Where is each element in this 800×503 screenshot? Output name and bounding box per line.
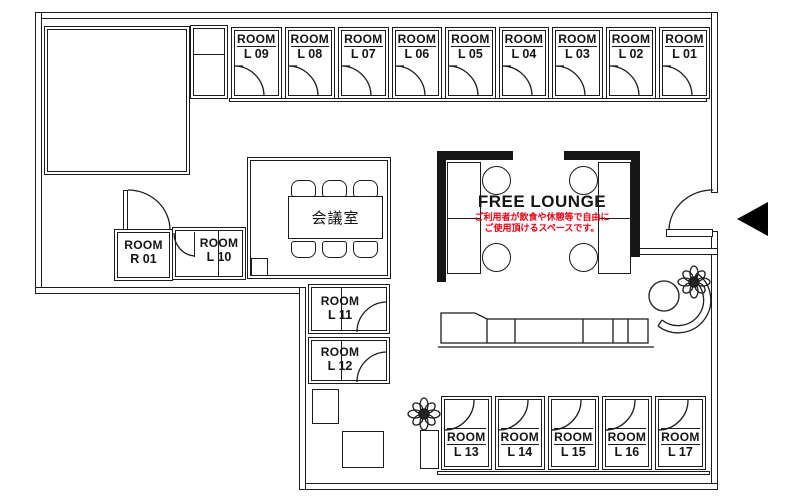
room-word: ROOM <box>501 428 540 445</box>
closet-below-l12 <box>312 389 339 424</box>
room-word: ROOM <box>447 428 486 445</box>
room-label: L 14 <box>496 445 545 460</box>
storage-room-small <box>190 25 228 99</box>
room-word: ROOM <box>608 428 647 445</box>
room-door-arc <box>551 399 581 430</box>
room-l15: ROOM L 15 <box>548 396 599 470</box>
room-word: ROOM <box>505 32 544 47</box>
storage-room-large <box>44 26 190 175</box>
wall-bottom <box>299 483 718 490</box>
wall-top <box>35 12 718 19</box>
room-label: L 11 <box>309 308 371 323</box>
room-l12: ROOM L 12 <box>308 337 390 384</box>
lounge-description-line1: ご利用者が飲食や休憩等で自由に <box>452 212 632 224</box>
room-l10: ROOM L 10 <box>172 227 246 280</box>
lounge-description-line2: ご使用頂けるスペースです。 <box>452 223 632 235</box>
room-l11: ROOM L 11 <box>308 284 390 334</box>
room-word: ROOM <box>554 428 593 445</box>
room-label: L 06 <box>393 47 442 62</box>
room-l03: ROOM L 03 <box>552 27 603 99</box>
wall-entrance-lower <box>637 248 718 255</box>
rooms-bottom-baseline <box>437 471 710 475</box>
room-r01: ROOM R 01 <box>114 229 173 281</box>
rooms-bottom-row: ROOM L 13 ROOM L 14 ROOM L 15 ROOM L 16 <box>441 396 704 470</box>
rooms-top-row: ROOM L 09 ROOM L 08 ROOM L 07 ROOM L 06 <box>231 27 705 99</box>
room-word: ROOM <box>612 32 651 47</box>
room-label: R 01 <box>115 252 172 267</box>
lounge-title: FREE LOUNGE <box>452 192 632 212</box>
room-label: L 10 <box>193 250 245 265</box>
room-l07: ROOM L 07 <box>338 27 389 99</box>
rooms-top-baseline <box>229 98 707 102</box>
room-door-arc <box>555 65 585 96</box>
room-word: ROOM <box>344 32 383 47</box>
room-l16: ROOM L 16 <box>602 396 653 470</box>
room-door-arc <box>341 65 371 96</box>
room-word: ROOM <box>237 32 276 47</box>
room-l08: ROOM L 08 <box>285 27 336 99</box>
room-label: L 01 <box>660 47 709 62</box>
floorplan: ROOM L 09 ROOM L 08 ROOM L 07 ROOM L 06 <box>0 0 800 503</box>
meeting-table: 会議室 <box>288 196 383 239</box>
room-door-arc <box>444 399 474 430</box>
room-label: L 17 <box>656 445 705 460</box>
room-door-arc <box>605 399 635 430</box>
room-word: ROOM <box>120 238 167 252</box>
lounge-left-wall-top <box>437 151 513 160</box>
room-label: L 05 <box>446 47 495 62</box>
room-l06: ROOM L 06 <box>392 27 443 99</box>
meeting-chair <box>353 241 378 258</box>
room-label: L 03 <box>553 47 602 62</box>
wall-right-upper <box>711 12 718 193</box>
plant-icon <box>678 266 710 298</box>
storage-divider <box>193 54 225 55</box>
counter-bench <box>438 308 658 350</box>
floor-table <box>342 431 384 468</box>
room-l02: ROOM L 02 <box>606 27 657 99</box>
room-door-arc <box>234 65 264 96</box>
room-l01: ROOM L 01 <box>659 27 710 99</box>
wall-pillar-left-of-l13 <box>420 430 439 469</box>
corridor-door-arc <box>128 190 170 230</box>
room-word: ROOM <box>309 294 371 308</box>
meeting-chair <box>353 180 378 197</box>
room-l09: ROOM L 09 <box>231 27 282 99</box>
lounge-table <box>569 243 598 272</box>
room-l05: ROOM L 05 <box>445 27 496 99</box>
wall-lowerleft-horizontal <box>35 287 306 294</box>
meeting-room-label: 会議室 <box>311 207 359 228</box>
entrance-door-arc <box>669 190 713 231</box>
room-door-arc <box>498 399 528 430</box>
room-word: ROOM <box>398 32 437 47</box>
entrance-door-leaf <box>666 229 713 237</box>
room-door-arc <box>395 65 425 96</box>
lounge-table <box>569 166 598 195</box>
room-door-arc <box>288 65 318 96</box>
room-label: L 08 <box>286 47 335 62</box>
room-label: L 02 <box>607 47 656 62</box>
room-door-arc <box>448 65 478 96</box>
room-l13: ROOM L 13 <box>441 396 492 470</box>
meeting-chair <box>322 180 347 197</box>
room-label: L 07 <box>339 47 388 62</box>
room-door-arc <box>662 65 692 96</box>
room-l17: ROOM L 17 <box>655 396 706 470</box>
lounge-left-wall-vertical <box>437 151 446 282</box>
room-word: ROOM <box>193 236 245 250</box>
meeting-corner-cabinet <box>251 258 268 276</box>
room-word: ROOM <box>451 32 490 47</box>
lounge-right-wall-vertical <box>631 151 640 257</box>
lounge-right-wall-top <box>564 151 640 160</box>
room-label: L 13 <box>442 445 491 460</box>
room-label: L 16 <box>603 445 652 460</box>
room-door-arc <box>658 399 688 430</box>
wall-left <box>35 12 42 294</box>
lounge-table <box>482 243 511 272</box>
room-label: L 04 <box>500 47 549 62</box>
room-word: ROOM <box>309 345 371 359</box>
meeting-chair <box>322 241 347 258</box>
room-l04: ROOM L 04 <box>499 27 550 99</box>
meeting-chair <box>291 241 316 258</box>
room-l14: ROOM L 14 <box>495 396 546 470</box>
room-door-arc <box>502 65 532 96</box>
room-word: ROOM <box>661 428 700 445</box>
room-word: ROOM <box>665 32 704 47</box>
room-label: L 12 <box>309 359 371 374</box>
room-word: ROOM <box>558 32 597 47</box>
plant-icon <box>408 398 440 430</box>
lounge-table <box>482 166 511 195</box>
room-door-arc <box>609 65 639 96</box>
room-label: L 15 <box>549 445 598 460</box>
wall-lowerleft-vertical <box>299 287 306 490</box>
room-word: ROOM <box>291 32 330 47</box>
entrance-arrow-icon <box>737 202 768 236</box>
meeting-chair <box>291 180 316 197</box>
room-label: L 09 <box>232 47 281 62</box>
